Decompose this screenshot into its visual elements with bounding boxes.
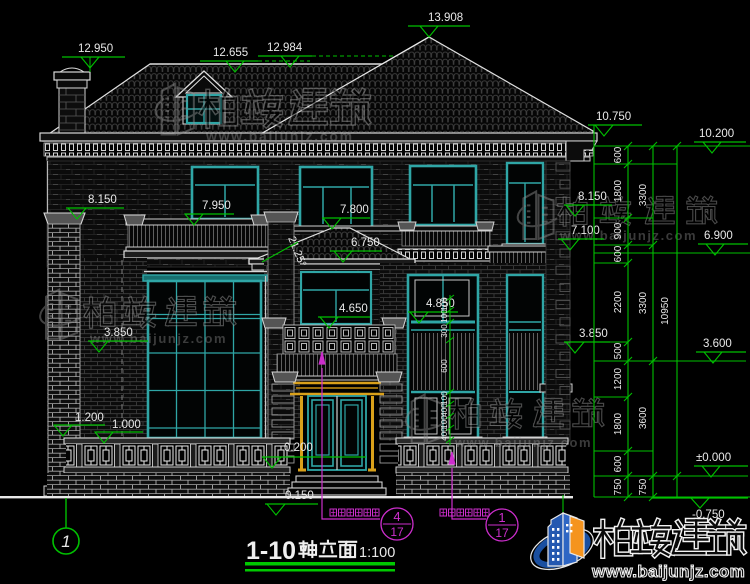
svg-text:1: 1 <box>61 532 70 551</box>
svg-text:100: 100 <box>440 309 449 323</box>
svg-text:3.850: 3.850 <box>579 328 608 340</box>
svg-text:10.750: 10.750 <box>596 111 631 123</box>
svg-text:300: 300 <box>440 324 449 338</box>
svg-text:www.baijunjz.com: www.baijunjz.com <box>454 435 592 450</box>
svg-text:www.baijunjz.com: www.baijunjz.com <box>205 128 354 144</box>
svg-text:10.200: 10.200 <box>699 128 734 140</box>
svg-text:1-10: 1-10 <box>246 537 296 565</box>
svg-text:500: 500 <box>613 342 624 359</box>
svg-text:4: 4 <box>393 509 400 524</box>
svg-text:400: 400 <box>440 427 449 441</box>
svg-text:400: 400 <box>440 403 449 417</box>
svg-text:6.900: 6.900 <box>704 230 733 242</box>
svg-text:8.150: 8.150 <box>88 194 117 206</box>
svg-text:6.750: 6.750 <box>351 237 380 249</box>
svg-text:900: 900 <box>613 222 624 239</box>
svg-text:4.650: 4.650 <box>339 303 368 315</box>
svg-text:13.908: 13.908 <box>428 12 463 24</box>
svg-text:1200: 1200 <box>613 367 624 390</box>
svg-text:100: 100 <box>440 391 449 405</box>
svg-text:7.950: 7.950 <box>202 200 231 212</box>
svg-text:-0.750: -0.750 <box>692 509 725 521</box>
svg-text:600: 600 <box>613 455 624 472</box>
svg-text:3300: 3300 <box>638 291 649 314</box>
svg-text:3.600: 3.600 <box>703 338 732 350</box>
svg-text:17: 17 <box>390 525 404 539</box>
svg-text:17: 17 <box>495 526 509 540</box>
svg-text:750: 750 <box>638 478 649 495</box>
svg-text:1.000: 1.000 <box>112 419 141 431</box>
svg-text:1:100: 1:100 <box>359 545 395 561</box>
svg-text:2200: 2200 <box>613 290 624 313</box>
svg-text:600: 600 <box>440 359 449 373</box>
svg-text:1800: 1800 <box>613 412 624 435</box>
svg-text:±0.000: ±0.000 <box>696 452 731 464</box>
svg-text:12.984: 12.984 <box>267 42 303 54</box>
svg-text:7.100: 7.100 <box>571 225 600 237</box>
svg-text:0.200: 0.200 <box>284 442 313 454</box>
svg-text:12.950: 12.950 <box>78 43 113 55</box>
svg-text:12.655: 12.655 <box>213 47 248 59</box>
svg-text:1.200: 1.200 <box>75 412 104 424</box>
svg-text:1800: 1800 <box>613 179 624 202</box>
svg-text:www.baijunjz.com: www.baijunjz.com <box>591 562 745 581</box>
svg-text:3.850: 3.850 <box>104 327 133 339</box>
svg-text:1: 1 <box>498 510 505 525</box>
svg-text:600: 600 <box>613 245 624 262</box>
svg-text:100: 100 <box>440 415 449 429</box>
svg-text:10950: 10950 <box>660 297 671 325</box>
svg-text:7.800: 7.800 <box>340 204 369 216</box>
svg-text:8.150: 8.150 <box>578 191 607 203</box>
svg-text:750: 750 <box>613 478 624 495</box>
svg-text:600: 600 <box>613 146 624 163</box>
svg-text:3600: 3600 <box>638 406 649 429</box>
svg-text:0.150: 0.150 <box>285 490 314 502</box>
svg-text:100: 100 <box>440 297 449 311</box>
svg-text:3300: 3300 <box>638 183 649 206</box>
